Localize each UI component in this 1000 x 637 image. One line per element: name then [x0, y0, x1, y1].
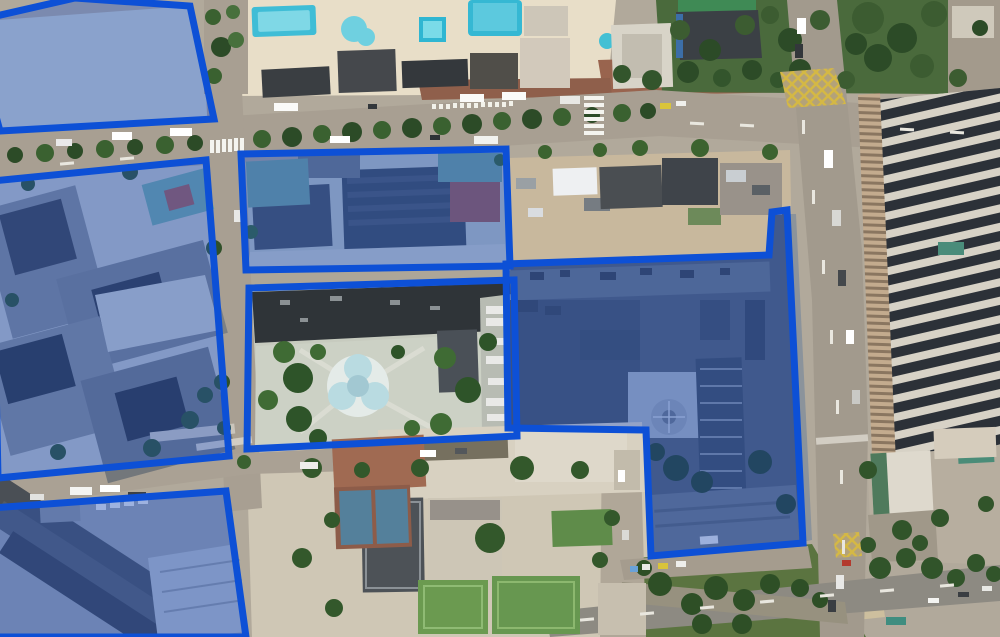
campus-roof-panel: [430, 500, 500, 520]
beige-building: [933, 427, 996, 459]
tree-canopy: [972, 20, 988, 36]
tree-canopy: [699, 39, 721, 61]
tree-canopy: [931, 509, 949, 527]
vehicle: [676, 101, 686, 106]
tree-canopy: [373, 121, 391, 139]
tree-canopy: [978, 496, 994, 512]
rooftop-unit: [390, 300, 400, 305]
vehicle: [958, 592, 969, 597]
tree-canopy: [205, 9, 221, 25]
tree-canopy: [282, 127, 302, 147]
vehicle: [982, 586, 992, 591]
tree-canopy: [921, 1, 947, 27]
road-marking: [822, 260, 825, 274]
vehicle: [846, 330, 854, 344]
construction-shed: [516, 178, 536, 189]
tree-canopy: [692, 614, 712, 634]
tree-canopy: [127, 139, 143, 155]
tree-canopy: [852, 2, 884, 34]
tree-canopy: [538, 145, 552, 159]
vehicle: [824, 150, 833, 168]
vehicle: [658, 563, 668, 569]
vehicle: [100, 485, 120, 492]
vehicle: [886, 617, 906, 625]
tree-canopy: [292, 548, 312, 568]
tree-canopy: [677, 61, 699, 83]
parcel-tint-sports-courts-northwest: [0, 0, 214, 131]
road-marking: [453, 103, 457, 108]
pool-building-roof: [470, 53, 518, 89]
tree-canopy: [859, 461, 877, 479]
tree-canopy: [462, 114, 482, 134]
road-marking: [474, 103, 478, 108]
vehicle: [460, 94, 484, 102]
road-marking: [502, 102, 506, 107]
tree-canopy: [430, 413, 452, 435]
vehicle: [330, 136, 350, 143]
soccer-pitch: [418, 580, 488, 634]
tree-canopy: [613, 65, 631, 83]
estate-teal-roof: [938, 242, 964, 255]
aerial-screenshot: [0, 0, 1000, 637]
vehicle: [828, 600, 836, 612]
rooftop-unit: [726, 170, 746, 182]
campus-basketball-court: [375, 489, 409, 544]
tree-canopy: [604, 510, 620, 526]
tree-canopy: [864, 44, 892, 72]
box-junction-small: [833, 532, 862, 558]
vehicle: [420, 450, 436, 457]
tree-canopy: [402, 118, 422, 138]
vehicle: [56, 139, 72, 146]
rooftop-pitch: [678, 0, 756, 12]
rooftop-unit: [752, 185, 770, 195]
road-marking: [439, 104, 443, 109]
vehicle: [928, 598, 939, 603]
vehicle: [430, 135, 440, 140]
vehicle: [502, 92, 526, 100]
tree-canopy: [433, 117, 451, 135]
tree-canopy: [640, 103, 656, 119]
tree-canopy: [860, 537, 876, 553]
tree-canopy: [845, 33, 867, 55]
road-marking: [228, 139, 232, 152]
vehicle: [795, 44, 803, 58]
road-marking: [842, 540, 845, 554]
road-marking: [836, 400, 839, 414]
vehicle: [170, 128, 192, 136]
tree-canopy: [522, 109, 542, 129]
tree-canopy: [391, 345, 405, 359]
square-pool-water: [423, 21, 442, 38]
tree-canopy: [896, 548, 916, 568]
road-marking: [584, 131, 604, 135]
tree-canopy: [912, 535, 928, 551]
tree-canopy: [286, 406, 312, 432]
tree-canopy: [237, 455, 251, 469]
road-marking: [240, 138, 244, 151]
rooftop-unit: [330, 296, 342, 301]
tree-canopy: [732, 614, 752, 634]
road-marking: [467, 103, 471, 108]
vehicle: [838, 270, 846, 286]
tree-canopy: [96, 140, 114, 158]
tree-canopy: [791, 579, 809, 597]
tree-canopy: [642, 70, 662, 90]
construction-shed: [528, 208, 543, 217]
vehicle: [630, 566, 638, 572]
soccer-pitch: [492, 576, 580, 634]
tree-canopy: [910, 54, 934, 78]
vehicle: [842, 560, 851, 566]
road-marking: [584, 124, 604, 128]
road-marking: [584, 117, 604, 121]
kidney-pool-lobe: [357, 28, 375, 46]
vehicle: [300, 462, 318, 469]
vehicle: [642, 564, 650, 570]
vehicle: [368, 104, 377, 109]
pool-building-roof: [402, 59, 469, 88]
vehicle: [474, 136, 498, 144]
vehicle: [660, 103, 671, 109]
tree-canopy: [967, 554, 985, 572]
rooftop-unit: [280, 300, 290, 305]
vehicle: [676, 561, 686, 567]
tree-canopy: [324, 512, 340, 528]
green-court: [551, 509, 612, 547]
tree-canopy: [869, 557, 891, 579]
road-marking: [495, 102, 499, 107]
road-marking: [802, 120, 805, 134]
satellite-canvas: [0, 0, 1000, 637]
tree-canopy: [921, 557, 943, 579]
vehicle: [836, 575, 844, 589]
road-marking: [830, 330, 833, 344]
tree-canopy: [892, 520, 912, 540]
rooftop-unit: [430, 306, 440, 310]
tree-canopy: [632, 140, 648, 156]
tree-canopy: [313, 125, 331, 143]
tree-canopy: [455, 377, 481, 403]
vehicle: [560, 96, 580, 104]
road-marking: [584, 110, 604, 114]
tree-canopy: [681, 593, 703, 615]
clubhouse: [520, 38, 570, 88]
vehicle: [832, 210, 841, 226]
tree-canopy: [761, 6, 779, 24]
tree-canopy: [156, 136, 174, 154]
road-marking: [460, 103, 464, 108]
rooftop-unit: [300, 318, 308, 322]
parcel-tint-west-campus-block: [0, 160, 229, 478]
green-roof-edge: [870, 453, 889, 518]
tree-canopy: [187, 135, 203, 151]
tree-canopy: [760, 574, 780, 594]
tree-canopy: [733, 589, 755, 611]
vehicle: [852, 390, 860, 404]
road-marking: [432, 104, 436, 109]
tree-canopy: [310, 344, 326, 360]
tree-canopy: [258, 390, 278, 410]
campus-building: [614, 450, 640, 490]
tree-canopy: [493, 112, 511, 130]
main-pool-water: [473, 3, 517, 31]
tree-canopy: [648, 572, 672, 596]
vehicle: [622, 530, 629, 540]
vehicle: [618, 470, 625, 482]
road-marking: [216, 140, 220, 153]
tree-canopy: [253, 130, 271, 148]
vehicle: [70, 487, 92, 495]
green-roof: [688, 208, 721, 225]
vehicle: [112, 132, 132, 140]
tree-canopy: [354, 462, 370, 478]
tree-canopy: [475, 523, 505, 553]
construction-tent: [553, 167, 598, 196]
tree-canopy: [810, 10, 830, 30]
lap-pool-water: [258, 10, 311, 32]
industrial-roof: [662, 158, 718, 205]
road-marking: [446, 104, 450, 109]
road-marking: [222, 139, 226, 152]
tree-canopy: [593, 143, 607, 157]
vehicle: [797, 18, 806, 34]
road-marking: [210, 140, 214, 153]
tree-canopy: [592, 552, 608, 568]
campus-building: [598, 583, 646, 635]
tree-canopy: [36, 144, 54, 162]
fountain-center: [347, 375, 369, 397]
tree-canopy: [510, 456, 534, 480]
industrial-roof: [599, 165, 662, 209]
tree-canopy: [434, 347, 456, 369]
parcel-tint-north-school-block: [241, 149, 510, 270]
vehicle: [274, 103, 298, 111]
road-marking: [812, 190, 815, 204]
tree-canopy: [479, 333, 497, 351]
road-marking: [840, 470, 843, 484]
road-marking: [488, 102, 492, 107]
tree-canopy: [553, 108, 571, 126]
tree-canopy: [226, 5, 240, 19]
tree-canopy: [670, 20, 690, 40]
clubhouse: [524, 6, 568, 36]
vehicle: [234, 210, 241, 222]
tree-canopy: [7, 147, 23, 163]
tree-canopy: [283, 363, 313, 393]
tree-canopy: [691, 139, 709, 157]
tree-canopy: [228, 32, 244, 48]
tree-canopy: [713, 69, 731, 87]
tree-canopy: [613, 104, 631, 122]
tree-canopy: [887, 23, 917, 53]
northeast-building: [952, 6, 994, 38]
tree-canopy: [742, 60, 762, 80]
tree-canopy: [735, 15, 755, 35]
tree-canopy: [273, 341, 295, 363]
vehicle: [30, 494, 44, 500]
tree-canopy: [762, 144, 778, 160]
parcel-tint-southwest-block: [0, 491, 246, 637]
road-marking: [481, 102, 485, 107]
campus-basketball-court: [339, 490, 373, 545]
tree-canopy: [949, 69, 967, 87]
pool-building-roof: [261, 66, 330, 98]
tree-canopy: [404, 420, 420, 436]
pool-building-roof: [337, 49, 396, 93]
tree-canopy: [571, 461, 589, 479]
tree-canopy: [704, 576, 728, 600]
road-marking: [509, 101, 513, 106]
road-marking: [234, 138, 238, 151]
tree-canopy: [411, 459, 429, 477]
vehicle: [455, 448, 467, 454]
road-marking: [584, 96, 604, 100]
road-marking: [584, 103, 604, 107]
tree-canopy: [325, 599, 343, 617]
